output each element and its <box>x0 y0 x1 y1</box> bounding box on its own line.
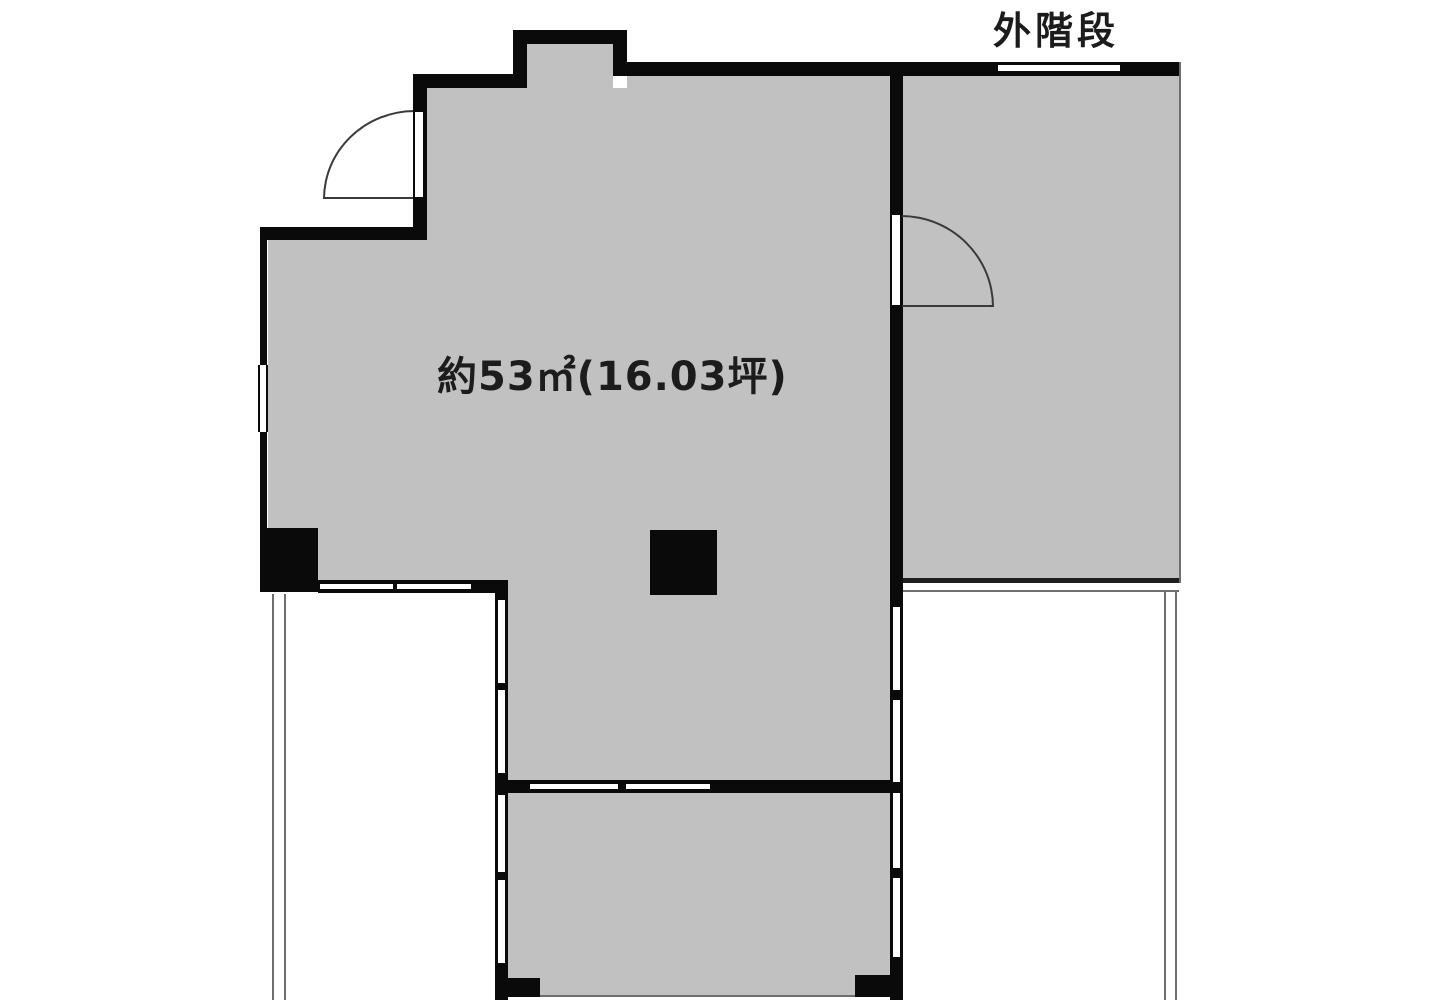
window-west-1 <box>496 600 507 683</box>
window-west-3 <box>496 795 507 872</box>
floor-right-room <box>903 76 1180 580</box>
window-east-3 <box>891 793 902 868</box>
window-west-2 <box>496 690 507 773</box>
window-east-1 <box>891 607 902 690</box>
door-leaf-entry <box>413 110 425 199</box>
door-swing-chord-right-room <box>901 305 994 307</box>
balcony-left-rail-inner <box>284 594 286 1000</box>
wall-bottom-right-corner <box>855 975 903 997</box>
window-bottom-left-mullion <box>393 582 397 591</box>
wall-bottom-left-corner <box>495 978 540 997</box>
balcony-right-rail-outer <box>1175 592 1177 1000</box>
window-top-right <box>998 63 1120 73</box>
outside-stairs-label: 外階段 <box>993 0 1119 55</box>
floor-main-room-upper <box>427 88 890 248</box>
pillar-center <box>650 530 717 595</box>
balcony-right-rail-inner <box>1164 592 1166 1000</box>
floor-main-room <box>268 240 890 585</box>
window-west-4 <box>496 880 507 963</box>
wall-top-left-of-bump <box>413 74 513 88</box>
wall-bump-top <box>513 30 627 44</box>
door-swing-chord-entry <box>323 197 415 199</box>
window-middle-wall-2 <box>626 782 710 791</box>
window-east-4 <box>891 878 902 957</box>
wall-right-room-bottom <box>903 578 1181 583</box>
door-swing-arc-entry <box>323 110 415 199</box>
balcony-right-top-line <box>903 590 1179 592</box>
window-east-2 <box>891 700 902 782</box>
pillar-left <box>260 528 318 592</box>
door-leaf-right-room <box>890 213 902 307</box>
wall-bump-right <box>613 44 627 76</box>
floor-plan: 外階段 約53㎡(16.03坪) <box>0 0 1440 1000</box>
bottom-opening-line <box>540 995 855 997</box>
balcony-left-rail-outer <box>272 594 274 1000</box>
window-left-wall <box>258 365 268 432</box>
area-label: 約53㎡(16.03坪) <box>437 344 788 402</box>
window-middle-wall-1 <box>530 782 618 791</box>
wall-top-left <box>260 227 427 240</box>
wall-divider-vertical <box>890 62 903 605</box>
floor-alcove-bump <box>527 44 613 94</box>
right-room-right-edge <box>1179 62 1181 583</box>
